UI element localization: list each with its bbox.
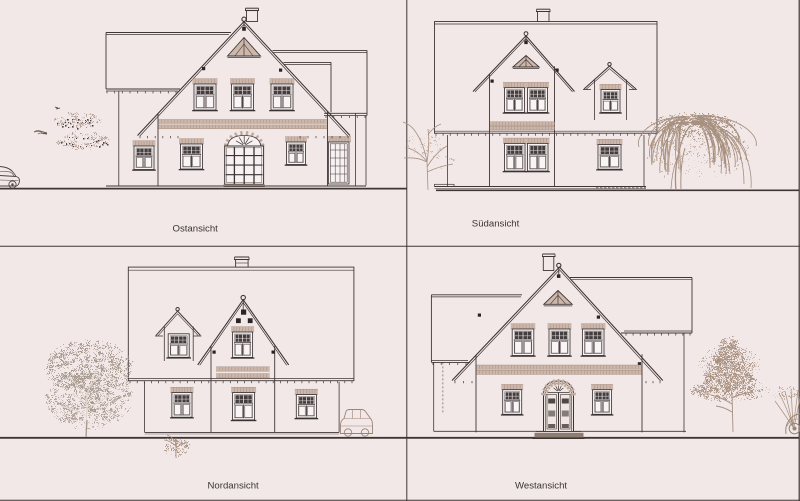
svg-text:Westansicht: Westansicht — [515, 481, 567, 492]
svg-text:Südansicht: Südansicht — [472, 218, 520, 229]
svg-text:Ostansicht: Ostansicht — [173, 224, 219, 235]
svg-text:Nordansicht: Nordansicht — [208, 481, 260, 492]
